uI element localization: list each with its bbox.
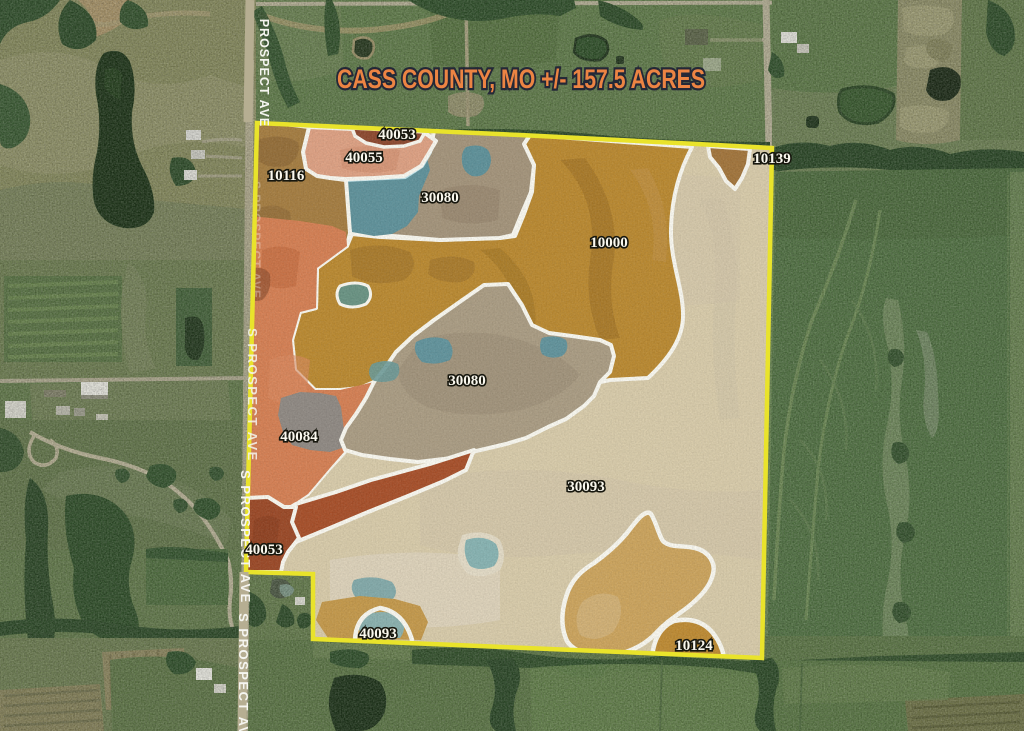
svg-text:30080: 30080 [421,190,459,206]
svg-text:PROSPECT AVE: PROSPECT AVE [257,19,271,128]
svg-text:10139: 10139 [753,151,791,167]
svg-text:10116: 10116 [268,168,305,184]
svg-text:S PROSPECT AVE: S PROSPECT AVE [245,328,260,462]
svg-text:CASS COUNTY, MO +/- 157.5 ACRE: CASS COUNTY, MO +/- 157.5 ACRES [337,64,705,94]
svg-text:40093: 40093 [359,626,397,642]
svg-text:10124: 10124 [675,638,713,654]
svg-text:S PROSPECT AVE: S PROSPECT AVE [236,613,251,731]
svg-text:10000: 10000 [590,235,628,251]
svg-text:40053: 40053 [245,542,283,558]
svg-text:30080: 30080 [448,373,486,389]
svg-text:30093: 30093 [567,479,605,495]
svg-text:40084: 40084 [280,429,318,445]
svg-text:40053: 40053 [378,127,416,143]
svg-text:40055: 40055 [345,150,383,166]
svg-text:S PROSPECT AVE: S PROSPECT AVE [238,470,253,604]
